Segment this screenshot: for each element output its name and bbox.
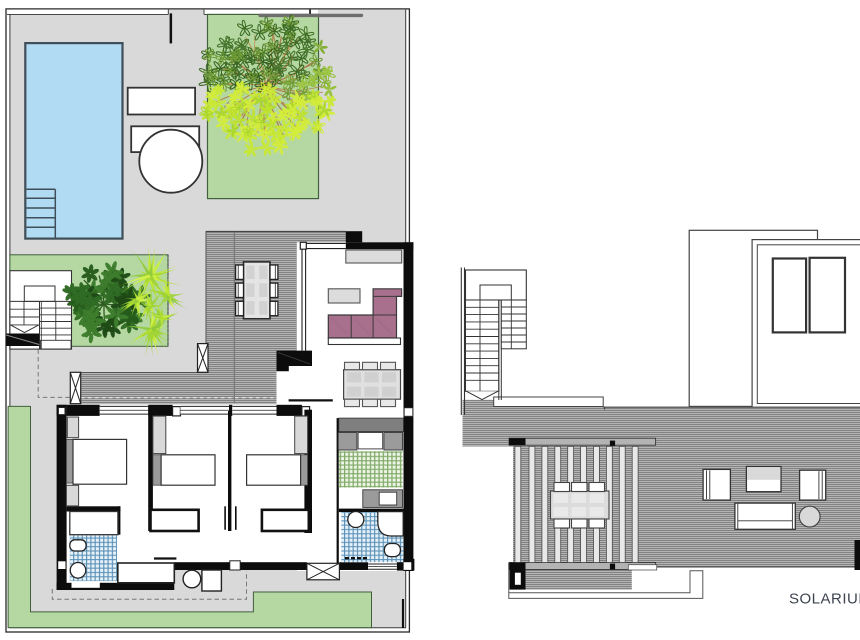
svg-text:SOLARIUM: SOLARIUM [789,591,860,608]
